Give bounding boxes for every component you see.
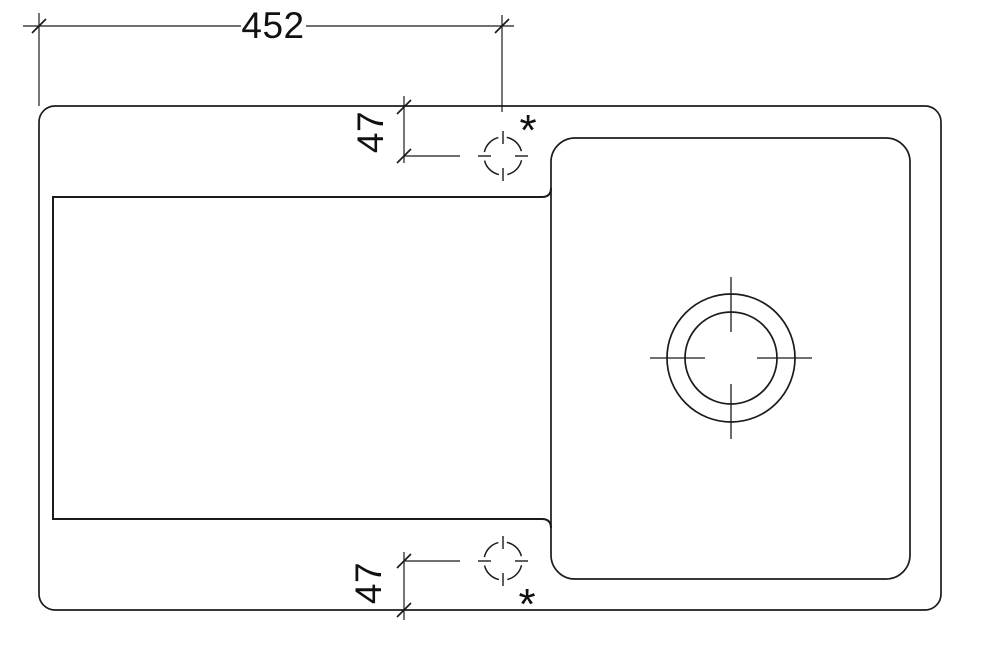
sink-technical-drawing: 452 47 47 * * [0,0,992,653]
tap-hole-top-asterisk: * [519,106,536,155]
basin-outline [551,138,910,579]
drain-center-marks [650,277,812,439]
drawing-lines-group [23,13,941,620]
dim-47-top-label: 47 [350,111,391,153]
tap-hole-bottom-asterisk: * [518,580,535,629]
tap-hole-bottom-centermarks [478,536,528,586]
dim-452-label: 452 [241,5,304,46]
tap-hole-bottom [478,536,528,586]
drainboard-outline [53,188,551,528]
drawing-text-group: 452 47 47 * * [241,5,536,629]
drawing-canvas: 452 47 47 * * [0,0,992,653]
dim-47-bottom-label: 47 [348,562,389,604]
